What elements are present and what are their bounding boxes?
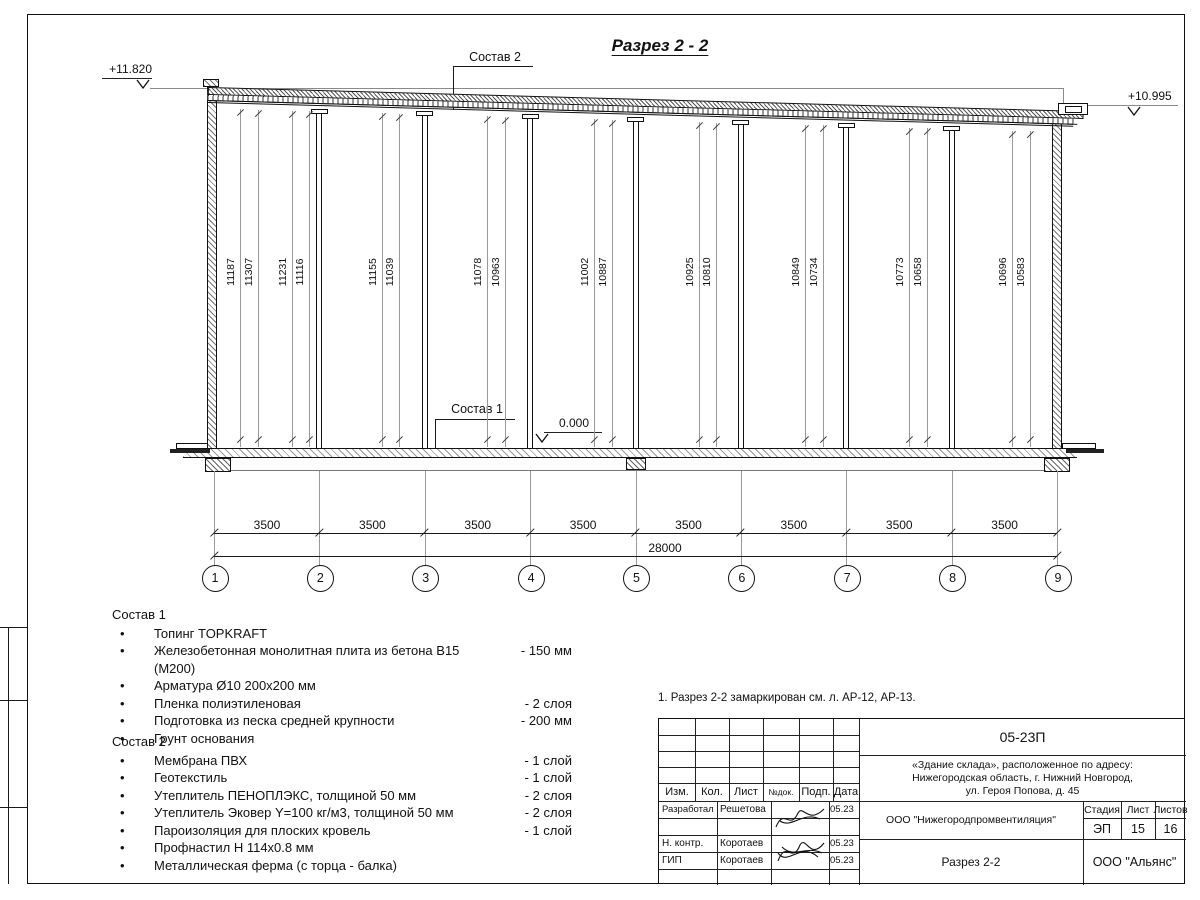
spec-item-qty (468, 625, 572, 643)
spec-item-text: Геотекстиль (154, 769, 468, 787)
spec-item-qty: - 2 слоя (468, 804, 572, 822)
tb-vline (717, 801, 718, 885)
grid-bubble: 2 (307, 565, 334, 592)
bay-dim-label: 3500 (319, 518, 425, 532)
tb-project-code: 05-23П (859, 719, 1186, 755)
bullet-icon: • (112, 822, 154, 840)
bay-dim-label: 3500 (952, 518, 1058, 532)
height-dim-label: 10696 (997, 240, 1009, 304)
height-dim-line (399, 114, 400, 447)
tb-hline (659, 751, 859, 752)
elevation-left-value: +11.820 (109, 62, 152, 76)
column (633, 122, 639, 448)
spec-item-qty: - 1 слой (468, 822, 572, 840)
spec-item-text: Металлическая ферма (с торца - балка) (154, 857, 468, 875)
bay-dim-label: 3500 (741, 518, 847, 532)
bay-dim-label: 3500 (530, 518, 636, 532)
bullet-icon: • (112, 695, 154, 713)
spec-item-text: Подготовка из песка средней крупности (154, 712, 468, 730)
grid-number: 6 (738, 571, 745, 585)
right-edge-bar (1066, 449, 1104, 453)
height-dim-label: 10849 (790, 240, 802, 304)
right-wall (1052, 117, 1062, 452)
height-dim-label: 10963 (490, 240, 502, 304)
tb-sheet-value: 15 (1121, 818, 1155, 839)
spec-item: •Подготовка из песка средней крупности- … (112, 712, 572, 730)
height-dim-line (927, 128, 928, 447)
tb-sheets-value: 16 (1155, 818, 1186, 839)
height-dim-line (1012, 131, 1013, 447)
height-dim-line (716, 123, 717, 447)
spec-items: •Мембрана ПВХ- 1 слой•Геотекстиль- 1 сло… (112, 752, 572, 875)
roof-composition-callout: Состав 2 (455, 50, 535, 64)
height-dim-line (699, 122, 700, 447)
tb-sheet-label: Лист (1121, 801, 1155, 818)
height-dim-line (309, 111, 310, 447)
foundation-middle (626, 458, 646, 470)
spec-item-text: Утеплитель Эковер Y=100 кг/м3, толщиной … (154, 804, 468, 822)
grid-bubble: 8 (939, 565, 966, 592)
drawing-title: Разрез 2 - 2 (555, 36, 765, 56)
tb-hline (659, 735, 859, 736)
left-wall (207, 84, 217, 452)
floor-callout-underline (435, 419, 515, 420)
bay-dim-label: 3500 (846, 518, 952, 532)
column (316, 114, 322, 448)
elevation-mark-right: +10.995 (1128, 89, 1180, 103)
roof-callout-label: Состав 2 (469, 50, 521, 64)
bullet-icon: • (112, 804, 154, 822)
height-dim-line (292, 111, 293, 447)
spec-title: Состав 1 (112, 606, 572, 624)
tb-col-kol: Кол. (695, 783, 729, 801)
height-dim-line (1030, 131, 1031, 447)
height-dim-line (823, 125, 824, 447)
spec-item: •Утеплитель ПЕНОПЛЭКС, толщиной 50 мм- 2… (112, 787, 572, 805)
tb-org: ООО "Нижегородпромвентиляция" (859, 801, 1083, 839)
tb-stage-value: ЭП (1083, 818, 1121, 839)
grid-number: 8 (949, 571, 956, 585)
bullet-icon: • (112, 787, 154, 805)
spec-item: •Арматура Ø10 200x200 мм (112, 677, 572, 695)
dim-line-total (214, 556, 1057, 557)
height-dim-label: 11231 (277, 240, 289, 304)
grid-number: 2 (317, 571, 324, 585)
tb-drawing-name: Разрез 2-2 (859, 839, 1083, 885)
margin-box-line (0, 627, 28, 628)
grid-bubble: 4 (518, 565, 545, 592)
total-dim-value: 28000 (648, 541, 681, 555)
bay-dim-label: 3500 (636, 518, 742, 532)
margin-box-line (8, 627, 9, 884)
height-dim-line (612, 120, 613, 447)
tb-hline (659, 818, 859, 819)
grid-number: 9 (1055, 571, 1062, 585)
tb-col-data: Дата (833, 783, 859, 801)
grid-number: 5 (633, 571, 640, 585)
spec-item: •Профнастил Н 114x0.8 мм (112, 839, 572, 857)
tb-col-list: Лист (729, 783, 763, 801)
bullet-icon: • (112, 839, 154, 857)
spec-item-text: Профнастил Н 114x0.8 мм (154, 839, 468, 857)
bullet-icon: • (112, 857, 154, 875)
spec-item-qty: - 150 мм (468, 642, 572, 677)
roof-end-inner (1065, 106, 1082, 113)
elevation-arrow-icon (136, 79, 150, 89)
spec-item: •Пленка полиэтиленовая- 2 слоя (112, 695, 572, 713)
floor-callout-label: Состав 1 (451, 402, 503, 416)
bullet-icon: • (112, 752, 154, 770)
foundation-right (1044, 458, 1070, 472)
tb-date: 05.23 (830, 835, 858, 852)
column (949, 131, 955, 448)
titleblock: РазработалРешетова05.23Н. контр.Коротаев… (658, 718, 1185, 884)
foundation-left (205, 458, 231, 472)
bullet-icon: • (112, 769, 154, 787)
height-dim-line (487, 116, 488, 447)
spec-item-text: Железобетонная монолитная плита из бетон… (154, 642, 468, 677)
left-edge-bar (170, 449, 210, 453)
height-dim-label: 11039 (384, 240, 396, 304)
tb-date: 05.23 (830, 852, 858, 869)
tb-role: ГИП (662, 852, 717, 869)
grid-number: 1 (212, 571, 219, 585)
height-dim-label: 10810 (701, 240, 713, 304)
spec-item-qty: - 2 слоя (468, 787, 572, 805)
grid-number: 7 (844, 571, 851, 585)
grid-extension-line (1057, 471, 1058, 566)
tb-name: Коротаев (720, 835, 770, 852)
grid-number: 4 (528, 571, 535, 585)
roof-composition-spec: Состав 2 •Мембрана ПВХ- 1 слой•Геотексти… (112, 733, 572, 874)
spec-item-text: Арматура Ø10 200x200 мм (154, 677, 468, 695)
tb-address-line: Нижегородская область, г. Нижний Новгоро… (912, 772, 1133, 785)
bullet-icon: • (112, 712, 154, 730)
level-zero-mark: 0.000 (548, 416, 600, 430)
tb-name: Решетова (720, 801, 770, 818)
spec-item-qty: - 1 слой (468, 752, 572, 770)
height-dim-line (382, 113, 383, 447)
height-dim-label: 10734 (808, 240, 820, 304)
height-dim-label: 11307 (243, 240, 255, 304)
tb-role: Н. контр. (662, 835, 717, 852)
height-dim-line (805, 125, 806, 447)
margin-box-line (0, 807, 28, 808)
grid-bubble: 5 (623, 565, 650, 592)
grid-number: 3 (422, 571, 429, 585)
tb-address-line: ул. Героя Попова, д. 45 (966, 785, 1080, 798)
height-dim-line (258, 110, 259, 447)
column (738, 125, 744, 448)
spec-item-text: Пленка полиэтиленовая (154, 695, 468, 713)
bullet-icon: • (112, 642, 154, 677)
spec-title: Состав 2 (112, 733, 572, 751)
drawing-sheet: Разрез 2 - 2 +11.820 +10.995 0.000 Соста… (0, 0, 1200, 900)
column (527, 119, 533, 448)
spec-item: •Топинг TOPKRAFT (112, 625, 572, 643)
spec-item-text: Топинг TOPKRAFT (154, 625, 468, 643)
tb-company: ООО "Альянс" (1083, 839, 1186, 885)
level-zero-value: 0.000 (559, 416, 589, 430)
signature (772, 801, 828, 835)
margin-box-line (0, 700, 28, 701)
bay-dim-label: 3500 (214, 518, 320, 532)
total-dim-label: 28000 (630, 541, 700, 555)
spec-item-qty: - 200 мм (468, 712, 572, 730)
roof-end-block (1058, 103, 1088, 115)
height-dim-label: 11155 (367, 240, 379, 304)
grid-bubble: 1 (202, 565, 229, 592)
height-dim-line (240, 109, 241, 447)
floor-slab (183, 448, 1077, 458)
tb-role: Разработал (662, 801, 717, 818)
height-dim-line (909, 128, 910, 447)
height-dim-label: 10925 (684, 240, 696, 304)
height-dim-label: 10583 (1015, 240, 1027, 304)
tb-stage-label: Стадия (1083, 801, 1121, 818)
spec-item-qty (468, 857, 572, 875)
spec-item-qty: - 2 слоя (468, 695, 572, 713)
spec-item-qty: - 1 слой (468, 769, 572, 787)
tb-col-izm: Изм. (659, 783, 695, 801)
floor-composition-spec: Состав 1 •Топинг TOPKRAFT•Железобетонная… (112, 606, 572, 747)
height-dim-line (594, 119, 595, 447)
spec-item: •Утеплитель Эковер Y=100 кг/м3, толщиной… (112, 804, 572, 822)
elevation-mark-left: +11.820 (100, 62, 152, 76)
grid-bubble: 9 (1045, 565, 1072, 592)
spec-item: •Геотекстиль- 1 слой (112, 769, 572, 787)
spec-item-text: Утеплитель ПЕНОПЛЭКС, толщиной 50 мм (154, 787, 468, 805)
tb-name: Коротаев (720, 852, 770, 869)
height-dim-label: 11078 (472, 240, 484, 304)
tb-address-line: «Здание склада», расположенное по адресу… (912, 759, 1133, 772)
height-dim-label: 10658 (912, 240, 924, 304)
signature (772, 833, 828, 871)
sheet-note: 1. Разрез 2-2 замаркирован см. л. АР-12,… (658, 692, 916, 704)
column (843, 128, 849, 448)
grid-bubble: 7 (834, 565, 861, 592)
column (422, 116, 428, 448)
spec-item: •Железобетонная монолитная плита из бето… (112, 642, 572, 677)
tb-date: 05.23 (830, 801, 858, 818)
bay-dim-label: 3500 (425, 518, 531, 532)
tb-address: «Здание склада», расположенное по адресу… (859, 755, 1186, 801)
height-dim-label: 11002 (579, 240, 591, 304)
tb-hline (659, 767, 859, 768)
spec-item-qty (468, 677, 572, 695)
spec-item-text: Мембрана ПВХ (154, 752, 468, 770)
height-dim-label: 10773 (894, 240, 906, 304)
spec-item-qty (468, 839, 572, 857)
elevation-right-value: +10.995 (1128, 89, 1172, 103)
height-dim-label: 11187 (225, 240, 237, 304)
height-dim-label: 10887 (597, 240, 609, 304)
elevation-arrow-icon (1127, 106, 1141, 116)
tb-col-podp: Подп. (799, 783, 833, 801)
roof-callout-underline (453, 66, 533, 67)
spec-item-text: Пароизоляция для плоских кровель (154, 822, 468, 840)
spec-item: •Пароизоляция для плоских кровель- 1 сло… (112, 822, 572, 840)
height-dim-label: 11116 (294, 240, 306, 304)
spec-item: •Металлическая ферма (с торца - балка) (112, 857, 572, 875)
left-wall-cap (203, 79, 219, 87)
elevation-arrow-icon (535, 433, 549, 443)
tb-col-doc: №док. (763, 783, 799, 801)
tb-sheets-label: Листов (1155, 801, 1186, 818)
height-dim-line (505, 117, 506, 447)
spec-items: •Топинг TOPKRAFT•Железобетонная монолитн… (112, 625, 572, 748)
tb-hline (659, 869, 859, 870)
bullet-icon: • (112, 677, 154, 695)
dim-line-bays (214, 533, 1057, 534)
bullet-icon: • (112, 625, 154, 643)
spec-item: •Мембрана ПВХ- 1 слой (112, 752, 572, 770)
